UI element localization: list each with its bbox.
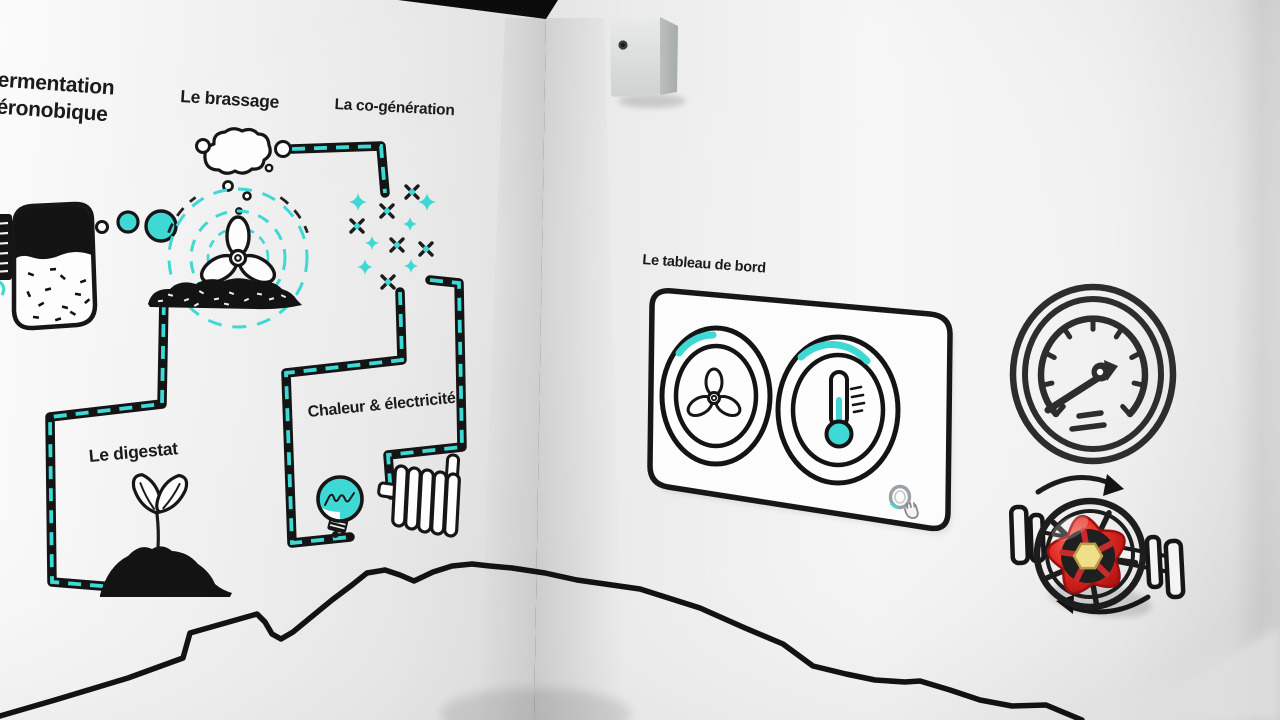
- fan-dial[interactable]: [662, 328, 770, 464]
- mural-title: fermentation aéronobique: [0, 66, 115, 128]
- scene-art: [0, 0, 1280, 720]
- fermenter-tank-icon: [0, 204, 95, 328]
- temperature-dial[interactable]: [778, 337, 898, 483]
- valve-hex-nut: [1074, 544, 1102, 568]
- room-scene: fermentation aéronobique Le brassage La …: [0, 0, 1280, 720]
